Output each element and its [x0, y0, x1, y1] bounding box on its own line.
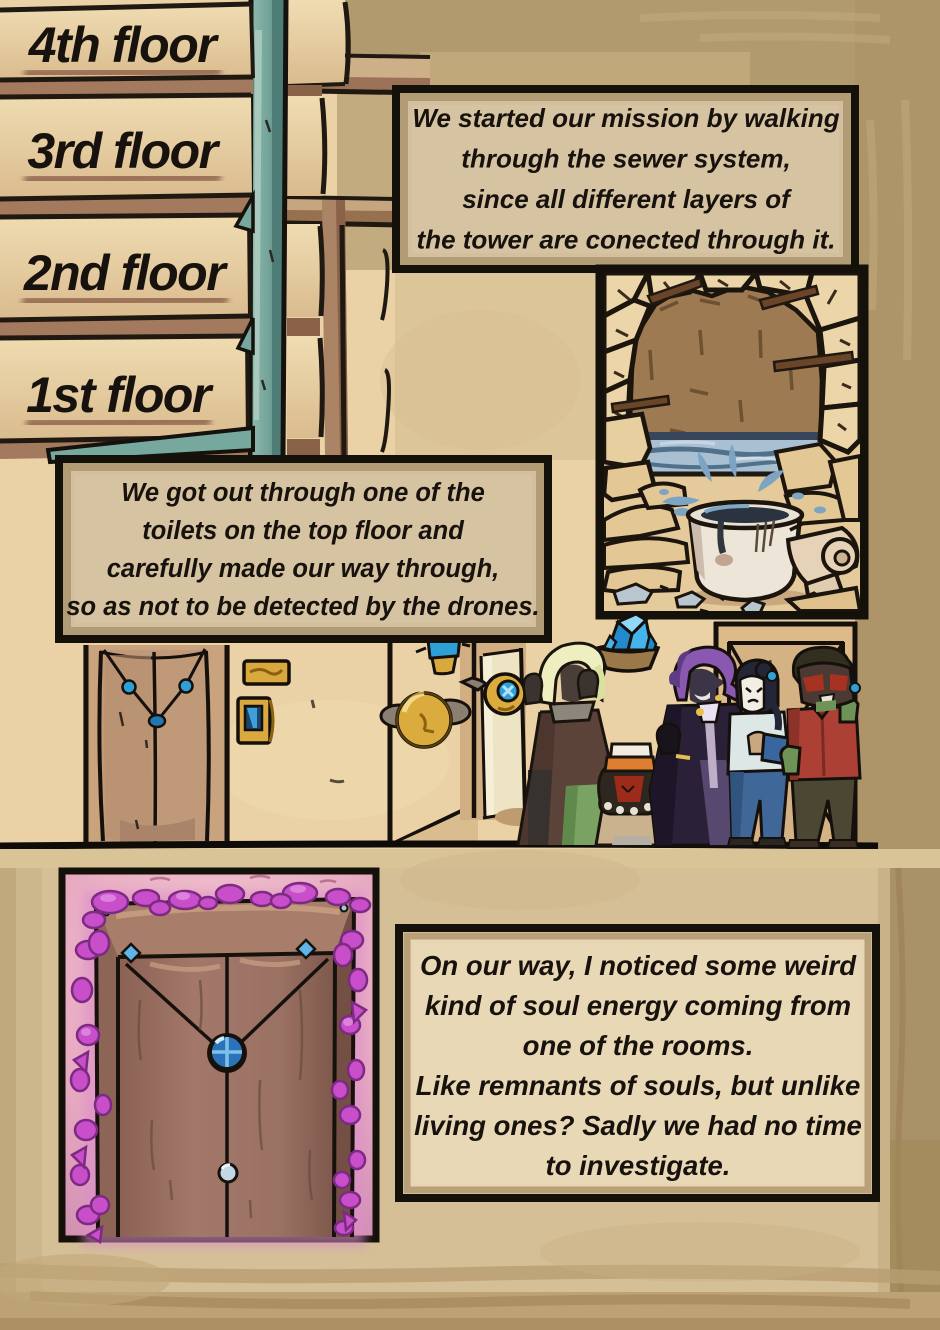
svg-text:through the sewer system,: through the sewer system,	[461, 144, 790, 174]
svg-text:We got out through one of the: We got out through one of the	[121, 479, 485, 507]
svg-text:toilets on the top floor and: toilets on the top floor and	[142, 517, 465, 545]
svg-text:4th floor: 4th floor	[28, 17, 220, 73]
svg-text:3rd floor: 3rd floor	[27, 123, 220, 179]
svg-text:one of the rooms.: one of the rooms.	[523, 1030, 754, 1061]
svg-text:Like remnants of souls, but un: Like remnants of souls, but unlike	[416, 1070, 861, 1101]
svg-text:carefully made our way through: carefully made our way through,	[107, 555, 500, 583]
svg-text:the tower are conected through: the tower are conected through it.	[417, 225, 836, 255]
svg-text:kind of soul energy coming fro: kind of soul energy coming from	[425, 990, 851, 1021]
svg-text:2nd floor: 2nd floor	[23, 245, 228, 301]
svg-text:so as not to be detected by th: so as not to be detected by the drones.	[66, 593, 539, 621]
svg-text:since all different layers of: since all different layers of	[462, 184, 792, 214]
svg-text:We started our mission by walk: We started our mission by walking	[412, 103, 839, 133]
svg-text:to investigate.: to investigate.	[546, 1150, 731, 1181]
svg-text:living ones? Sadly we had no t: living ones? Sadly we had no time	[414, 1110, 862, 1141]
svg-text:On our way, I noticed some wei: On our way, I noticed some weird	[420, 950, 857, 981]
svg-text:1st floor: 1st floor	[26, 367, 214, 423]
